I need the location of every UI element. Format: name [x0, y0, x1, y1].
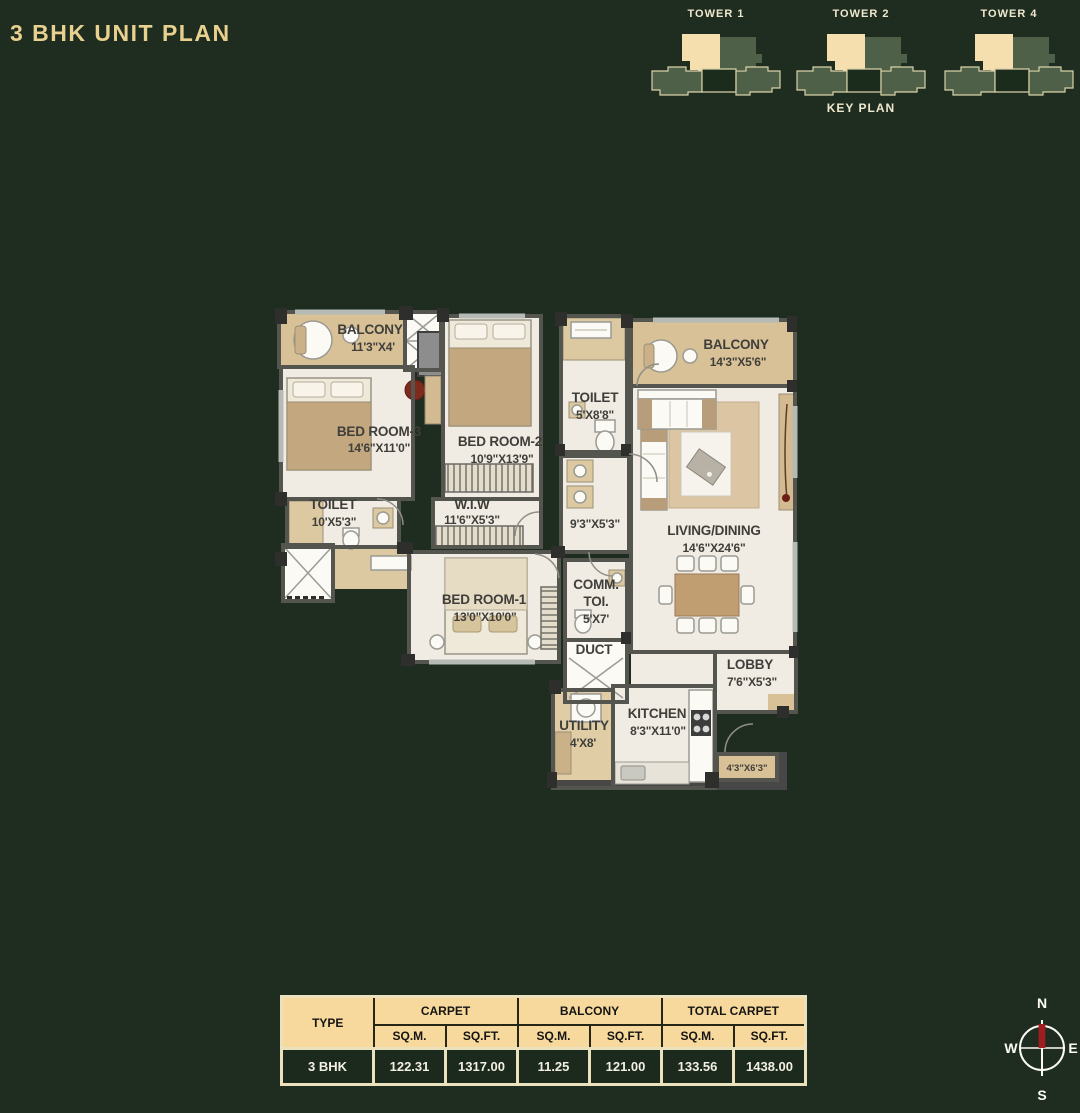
dims-balcony-2: 14'3"X5'6"	[710, 355, 766, 369]
cell-total-sqft: 1438.00	[734, 1049, 806, 1085]
tower1-label: TOWER 1	[648, 8, 784, 20]
dims-wiw: 11'6"X5'3"	[444, 513, 500, 527]
tower1-footprint-graphic	[648, 28, 784, 98]
compass-needle	[1039, 1024, 1046, 1048]
unit-header: SQ.M.	[662, 1025, 734, 1049]
page-title: 3 BHK UNIT PLAN	[10, 20, 231, 47]
wardrobe-bedroom2	[445, 464, 533, 492]
table-row: 3 BHK 122.31 1317.00 11.25 121.00 133.56…	[282, 1049, 806, 1085]
area-table: TYPE CARPET BALCONY TOTAL CARPET SQ.M. S…	[280, 995, 807, 1086]
label-comm-toi-2: TOI.	[583, 594, 608, 609]
unit-header: SQ.FT.	[446, 1025, 518, 1049]
dims-living-dining: 14'6"X24'6"	[683, 541, 746, 555]
cell-carpet-sqm: 122.31	[374, 1049, 446, 1085]
dims-bedroom-1: 13'0"X10'0"	[454, 610, 517, 624]
dims-balcony-1: 11'3"X4'	[351, 340, 395, 354]
bed-bedroom2	[449, 320, 531, 426]
label-utility: UTILITY	[559, 718, 609, 733]
tower2-label: TOWER 2	[793, 8, 929, 20]
compass-west-label: W	[1004, 1040, 1018, 1056]
label-lobby: LOBBY	[727, 657, 773, 672]
col-group-carpet: CARPET	[374, 997, 518, 1025]
label-comm-toi-1: COMM.	[573, 577, 619, 592]
cell-type: 3 BHK	[282, 1049, 374, 1085]
dims-passage: 9'3"X5'3"	[570, 517, 620, 531]
label-balcony-1: BALCONY	[337, 322, 403, 337]
sofa-set	[638, 390, 759, 510]
dims-comm-toi: 5'X7'	[583, 612, 609, 626]
col-header-type: TYPE	[282, 997, 374, 1049]
label-bedroom-2: BED ROOM-2	[458, 434, 542, 449]
tower4-footprint-graphic	[941, 28, 1077, 98]
cell-total-sqm: 133.56	[662, 1049, 734, 1085]
tower2-footprint-graphic	[793, 28, 929, 98]
unit-header: SQ.M.	[374, 1025, 446, 1049]
label-duct: DUCT	[576, 642, 614, 657]
unit-header: SQ.FT.	[590, 1025, 662, 1049]
wardrobe-wiw	[435, 526, 523, 546]
label-balcony-2: BALCONY	[703, 337, 769, 352]
dims-lobby: 7'6"X5'3"	[727, 675, 777, 689]
cell-balcony-sqft: 121.00	[590, 1049, 662, 1085]
tower4-label: TOWER 4	[941, 8, 1077, 20]
compass-south-label: S	[1037, 1087, 1046, 1103]
label-living-dining: LIVING/DINING	[667, 523, 760, 538]
floor-plan: BALCONY 11'3"X4' BED ROOM-3 14'6"X11'0" …	[273, 302, 805, 798]
dims-bedroom-3: 14'6"X11'0"	[348, 441, 410, 455]
label-wiw: W.I.W	[455, 497, 490, 512]
label-toilet-common: TOILET	[310, 497, 358, 512]
foyer-console	[371, 556, 411, 570]
cell-balcony-sqm: 11.25	[518, 1049, 590, 1085]
dims-entrance-deck: 4'3"X6'3"	[727, 763, 768, 774]
dims-kitchen: 8'3"X11'0"	[630, 724, 686, 738]
compass-rose: N W E S	[1002, 990, 1080, 1110]
cell-carpet-sqft: 1317.00	[446, 1049, 518, 1085]
col-group-balcony: BALCONY	[518, 997, 662, 1025]
dims-utility: 4'X8'	[570, 736, 596, 750]
compass-north-label: N	[1037, 995, 1047, 1011]
dims-bedroom-2: 10'9"X13'9"	[471, 452, 534, 466]
unit-plan-page: { "header": { "title": "3 BHK UNIT PLAN"…	[0, 0, 1080, 1113]
dims-toilet-master: 5'X8'8"	[576, 408, 614, 422]
label-bedroom-3: BED ROOM-3	[337, 424, 422, 439]
dresser	[425, 376, 441, 424]
label-kitchen: KITCHEN	[628, 706, 687, 721]
label-bedroom-1: BED ROOM-1	[442, 592, 527, 607]
unit-header: SQ.M.	[518, 1025, 590, 1049]
dims-toilet-common: 10'X5'3"	[312, 515, 357, 529]
compass-east-label: E	[1068, 1040, 1077, 1056]
label-toilet-master: TOILET	[572, 390, 620, 405]
unit-header: SQ.FT.	[734, 1025, 806, 1049]
living-walkway	[631, 650, 717, 688]
wardrobe-bedroom1	[541, 587, 559, 649]
key-plan-label: KEY PLAN	[793, 101, 929, 115]
col-group-total-carpet: TOTAL CARPET	[662, 997, 806, 1025]
